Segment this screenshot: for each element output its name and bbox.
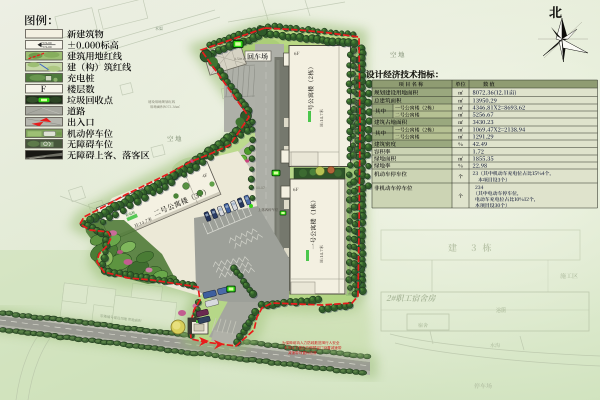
svg-text:㎡: ㎡: [458, 134, 463, 141]
svg-text:水沟: 水沟: [490, 342, 500, 349]
svg-text:其中: 其中: [375, 107, 387, 115]
svg-text:数 值: 数 值: [483, 81, 495, 88]
svg-text:一号公寓楼（1栋）: 一号公寓楼（1栋）: [309, 197, 318, 250]
svg-text:H:14.7米: H:14.7米: [319, 108, 325, 127]
svg-text:㎡: ㎡: [458, 105, 463, 112]
svg-text:停车场: 停车场: [474, 381, 492, 390]
svg-text:非机动车停车位: 非机动车停车位: [374, 184, 413, 192]
svg-text:8072.36(12.11亩): 8072.36(12.11亩): [473, 88, 517, 96]
svg-text:空地: 空地: [167, 134, 183, 143]
svg-text:㎡: ㎡: [458, 112, 463, 119]
svg-text:本项目设30个）: 本项目设30个）: [475, 202, 510, 209]
svg-text:6F: 6F: [294, 51, 300, 57]
svg-text:建 3栋: 建 3栋: [448, 241, 497, 254]
svg-text:宿舍: 宿舍: [418, 322, 428, 329]
svg-text:机动车停车位: 机动车停车位: [374, 170, 408, 178]
svg-text:水渠: 水渠: [155, 26, 163, 32]
svg-text:㎡: ㎡: [458, 119, 463, 126]
svg-text:建筑占地面积: 建筑占地面积: [374, 118, 408, 126]
svg-text:单位: 单位: [455, 81, 466, 88]
svg-text:绿地率: 绿地率: [374, 162, 391, 170]
svg-text:%: %: [458, 163, 463, 170]
svg-text:2#职工宿舍房: 2#职工宿舍房: [386, 293, 436, 304]
svg-text:总建筑面积: 总建筑面积: [374, 96, 402, 104]
svg-text:㎡: ㎡: [458, 89, 463, 96]
svg-text:设计经济技术指标：: 设计经济技术指标：: [366, 69, 443, 81]
svg-text:一号公寓楼（2栋）: 一号公寓楼（2栋）: [395, 127, 437, 134]
svg-text:㎡: ㎡: [458, 156, 463, 163]
svg-text:无障碍上客、落客区: 无障碍上客、落客区: [67, 147, 150, 161]
svg-text:其中: 其中: [375, 129, 387, 137]
svg-text:图例：: 图例：: [24, 13, 59, 29]
svg-text:浴厕: 浴厕: [496, 307, 506, 314]
svg-text:3.50×10=35.00: 3.50×10=35.00: [234, 56, 256, 61]
svg-text:F: F: [41, 83, 47, 95]
svg-text:一号公寓楼（2栋）: 一号公寓楼（2栋）: [395, 105, 437, 112]
svg-text:11.17: 11.17: [256, 185, 265, 190]
svg-text:个: 个: [458, 193, 463, 200]
svg-text:本项目设3个）: 本项目设3个）: [478, 177, 510, 184]
svg-text:用地面积8072.36㎡: 用地面积8072.36㎡: [150, 104, 180, 109]
svg-text:一号公寓楼（2栋）: 一号公寓楼（2栋）: [306, 63, 315, 116]
svg-text:6F: 6F: [293, 187, 299, 193]
svg-text:规划建设用地面积: 规划建设用地面积: [374, 88, 419, 96]
svg-text:减速带设置标志牌: 减速带设置标志牌: [288, 350, 317, 356]
svg-text:976.00: 976.00: [43, 45, 52, 49]
svg-text:㎡: ㎡: [458, 127, 463, 134]
svg-text:%: %: [458, 141, 463, 148]
svg-text:H:14.7米: H:14.7米: [319, 244, 325, 263]
svg-text:二号公寓楼: 二号公寓楼: [395, 134, 420, 141]
svg-text:上落客停车位: 上落客停车位: [258, 207, 279, 212]
svg-text:空地: 空地: [390, 50, 406, 59]
svg-text:北: 北: [549, 2, 562, 21]
svg-text:个: 个: [458, 173, 463, 180]
svg-text:项 目 名 称: 项 目 名 称: [399, 81, 424, 88]
svg-text:施工区: 施工区: [560, 271, 578, 280]
svg-text:22.98: 22.98: [473, 162, 488, 170]
svg-text:㎡: ㎡: [458, 97, 463, 104]
svg-text:45.90: 45.90: [355, 99, 360, 108]
